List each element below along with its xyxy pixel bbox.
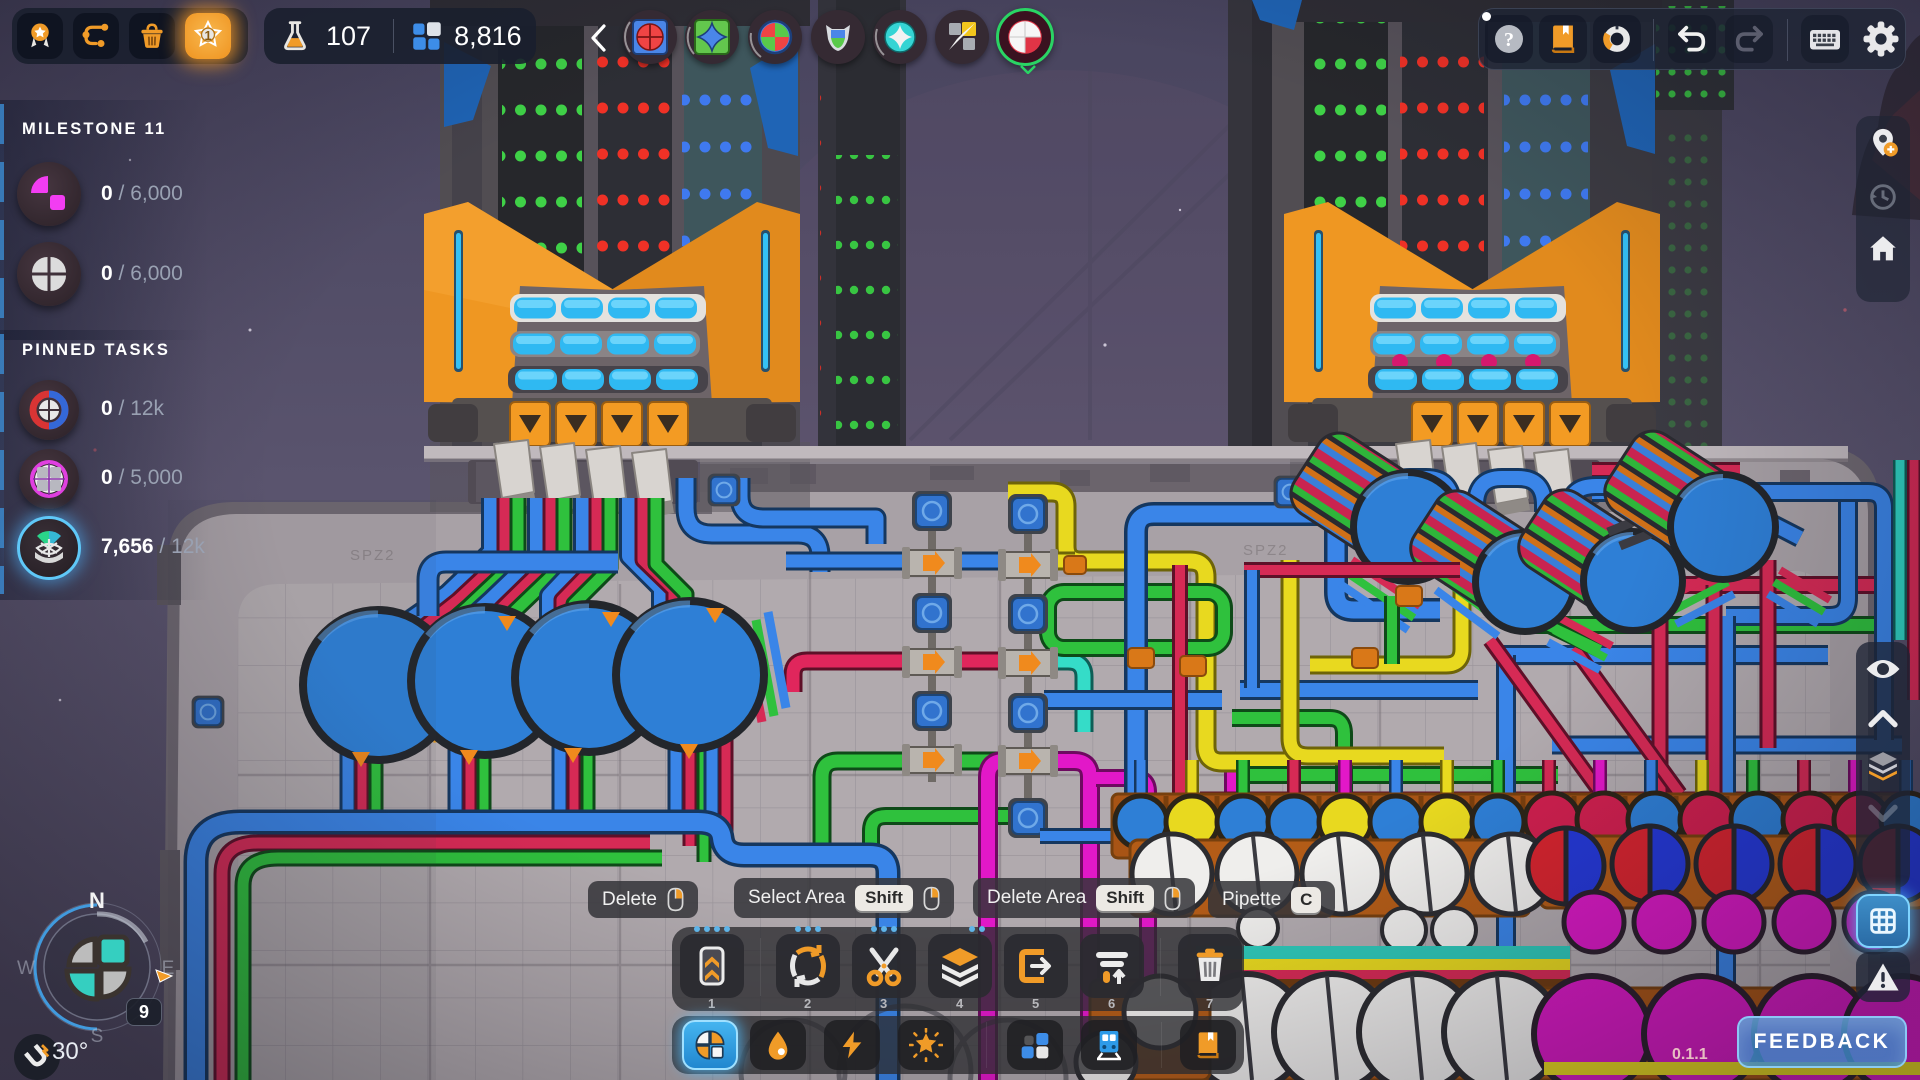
svg-text:N: N	[89, 888, 105, 913]
svg-text:?: ?	[1504, 29, 1514, 51]
svg-text:1: 1	[204, 28, 211, 43]
svg-text:W: W	[17, 958, 35, 979]
svg-text:S: S	[91, 1026, 104, 1047]
